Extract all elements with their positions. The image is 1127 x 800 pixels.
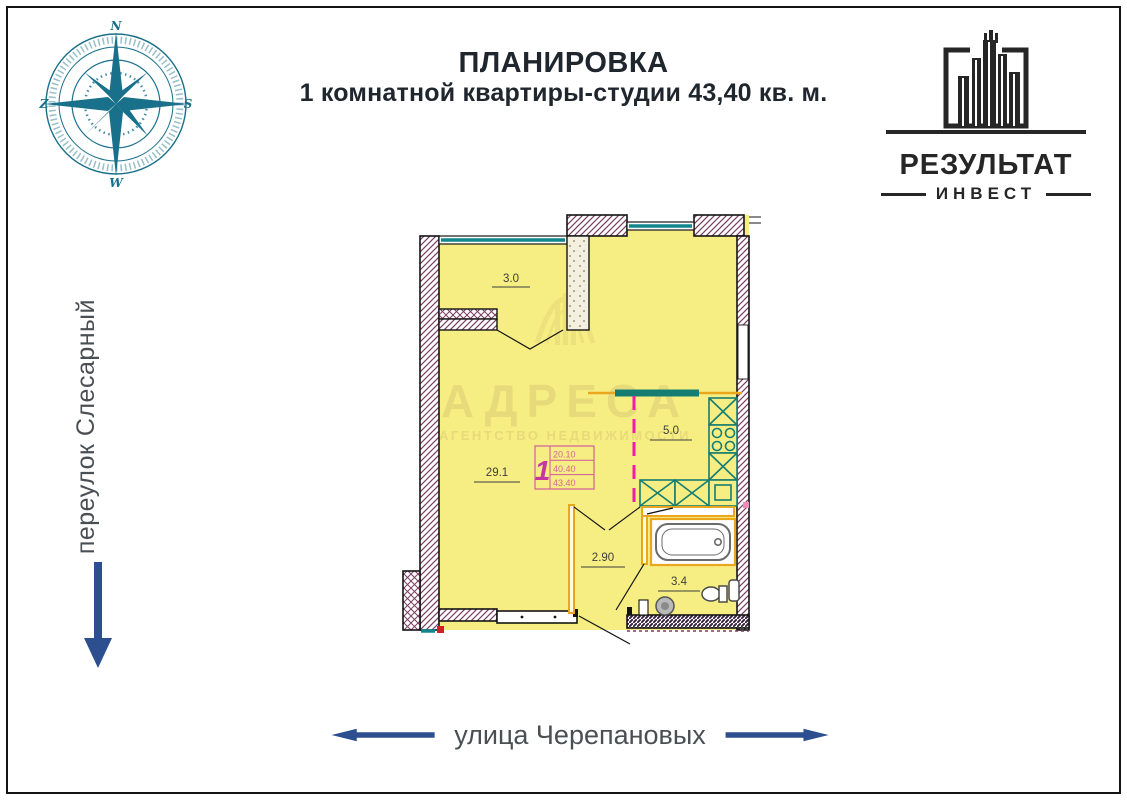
arrow-right-icon [724, 726, 830, 744]
street-label-bottom: улица Черепановых [330, 706, 830, 764]
watermark-title: АДРЕСА [441, 375, 689, 427]
floor-plan: АДРЕСА АГЕНТСТВО НЕДВИЖИМОСТИ [397, 203, 763, 649]
kitchen-area-label: 5.0 [663, 425, 679, 437]
logo-dash-right [1046, 193, 1091, 196]
logo-dash-left [881, 193, 926, 196]
logo-name: РЕЗУЛЬТАТ [881, 149, 1091, 182]
logo-subtitle: ИНВЕСТ [936, 184, 1036, 204]
living-area-label: 29.1 [486, 467, 508, 479]
street-label-left: переулок Слесарный [58, 284, 114, 569]
building-icon [886, 28, 1086, 140]
compass-letter-top: N [110, 20, 123, 33]
kitchen-counter-teal [615, 390, 699, 397]
street-left-text: переулок Слесарный [72, 299, 101, 554]
arrow-down-icon [80, 560, 116, 670]
bathroom-sink [729, 580, 739, 601]
compass-letter-bottom: W [109, 176, 124, 188]
stamp-row3: 43.40 [553, 478, 576, 488]
company-logo: РЕЗУЛЬТАТ ИНВЕСТ [881, 28, 1091, 204]
stamp-room-count: 1 [535, 455, 551, 486]
wall-mark-pink [743, 502, 749, 508]
hall-partition [569, 505, 574, 613]
street-bottom-text: улица Черепановых [454, 720, 706, 751]
bath-area-label: 3.4 [671, 576, 688, 588]
kitchen-sink [709, 480, 737, 506]
duct-shaft [738, 325, 748, 379]
corner-mark-red [437, 626, 444, 633]
hall-area-label: 2.90 [592, 552, 614, 564]
loggia-area-label: 3.0 [503, 273, 519, 285]
floor-plan-page: N S W Z ПЛАНИРОВКА 1 комнатной квартиры-… [0, 0, 1127, 800]
stamp-row1: 20.10 [553, 450, 576, 460]
stamp-row2: 40.40 [553, 464, 576, 474]
toilet [702, 587, 720, 601]
watermark-subtitle: АГЕНТСТВО НЕДВИЖИМОСТИ [439, 428, 691, 443]
arrow-left-icon [330, 726, 436, 744]
